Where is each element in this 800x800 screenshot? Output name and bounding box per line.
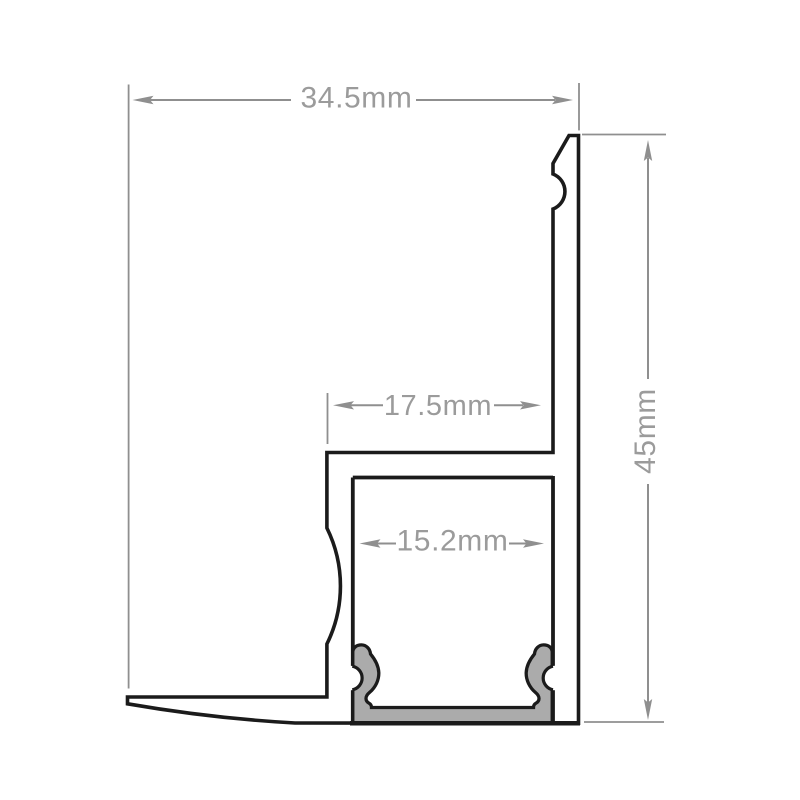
svg-text:34.5mm: 34.5mm bbox=[301, 82, 413, 115]
svg-text:45mm: 45mm bbox=[629, 388, 662, 474]
svg-text:17.5mm: 17.5mm bbox=[384, 390, 492, 422]
svg-text:15.2mm: 15.2mm bbox=[397, 525, 509, 558]
